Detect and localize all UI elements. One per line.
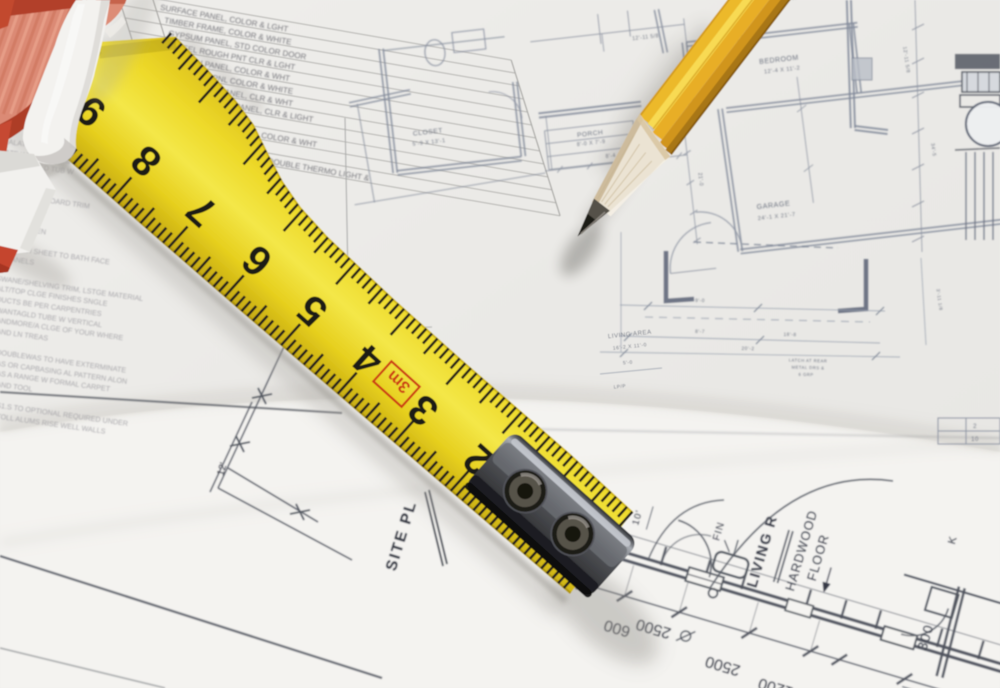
svg-text:18'-8: 18'-8 [783, 332, 796, 338]
svg-text:10: 10 [971, 437, 979, 443]
svg-text:8'-7: 8'-7 [695, 329, 705, 335]
svg-text:2: 2 [973, 424, 977, 430]
svg-text:9'-0: 9'-0 [695, 298, 705, 304]
svg-text:20'-2: 20'-2 [741, 346, 754, 352]
svg-text:METAL DRS &: METAL DRS & [791, 365, 824, 371]
svg-text:5'-0: 5'-0 [623, 360, 633, 367]
svg-text:6 GRP: 6 GRP [798, 372, 813, 377]
svg-text:LATCH AT REAR: LATCH AT REAR [789, 357, 828, 363]
